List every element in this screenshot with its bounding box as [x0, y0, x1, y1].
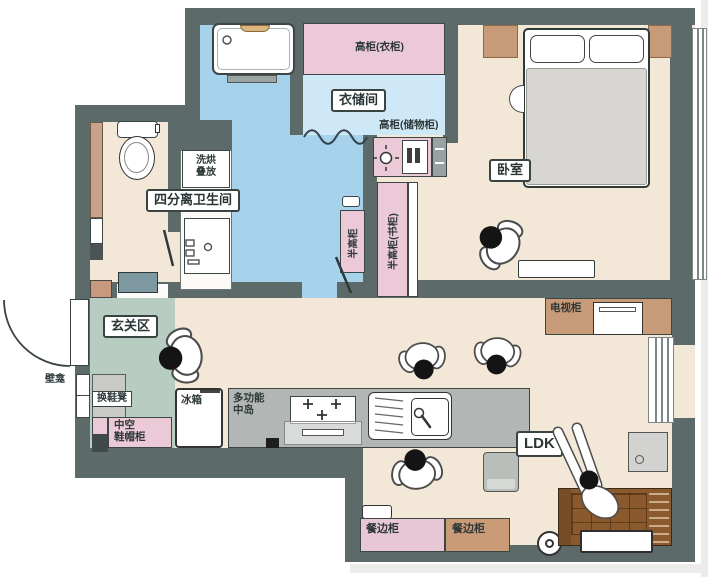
vanity-stool-icon [373, 145, 399, 171]
person-island-right [470, 336, 524, 377]
cooktop-burners-icon [303, 399, 341, 420]
shower-door-leaf [336, 257, 351, 293]
person-dining [386, 445, 447, 492]
vanity-mirror-icon [407, 148, 420, 163]
bathroom-faucet-icon [186, 240, 212, 264]
person-island-left [395, 340, 451, 383]
curtain-wave [304, 130, 367, 144]
person-entry [154, 323, 207, 390]
entry-door-arc [4, 300, 70, 366]
floor-plan: 高柜(衣柜) 衣储间 高柜(储物柜) 半高柜(书柜) 半高柜 洗烘 叠放 四分离… [0, 0, 708, 577]
sink-drainboard-icon [375, 398, 403, 433]
annotation-layer [0, 0, 708, 577]
person-daybed [558, 428, 624, 525]
sink-faucet-icon [415, 409, 431, 428]
toilet-door-leaf [164, 230, 173, 266]
person-bedroom [465, 207, 532, 278]
bathtub-drain-icon [223, 36, 231, 44]
